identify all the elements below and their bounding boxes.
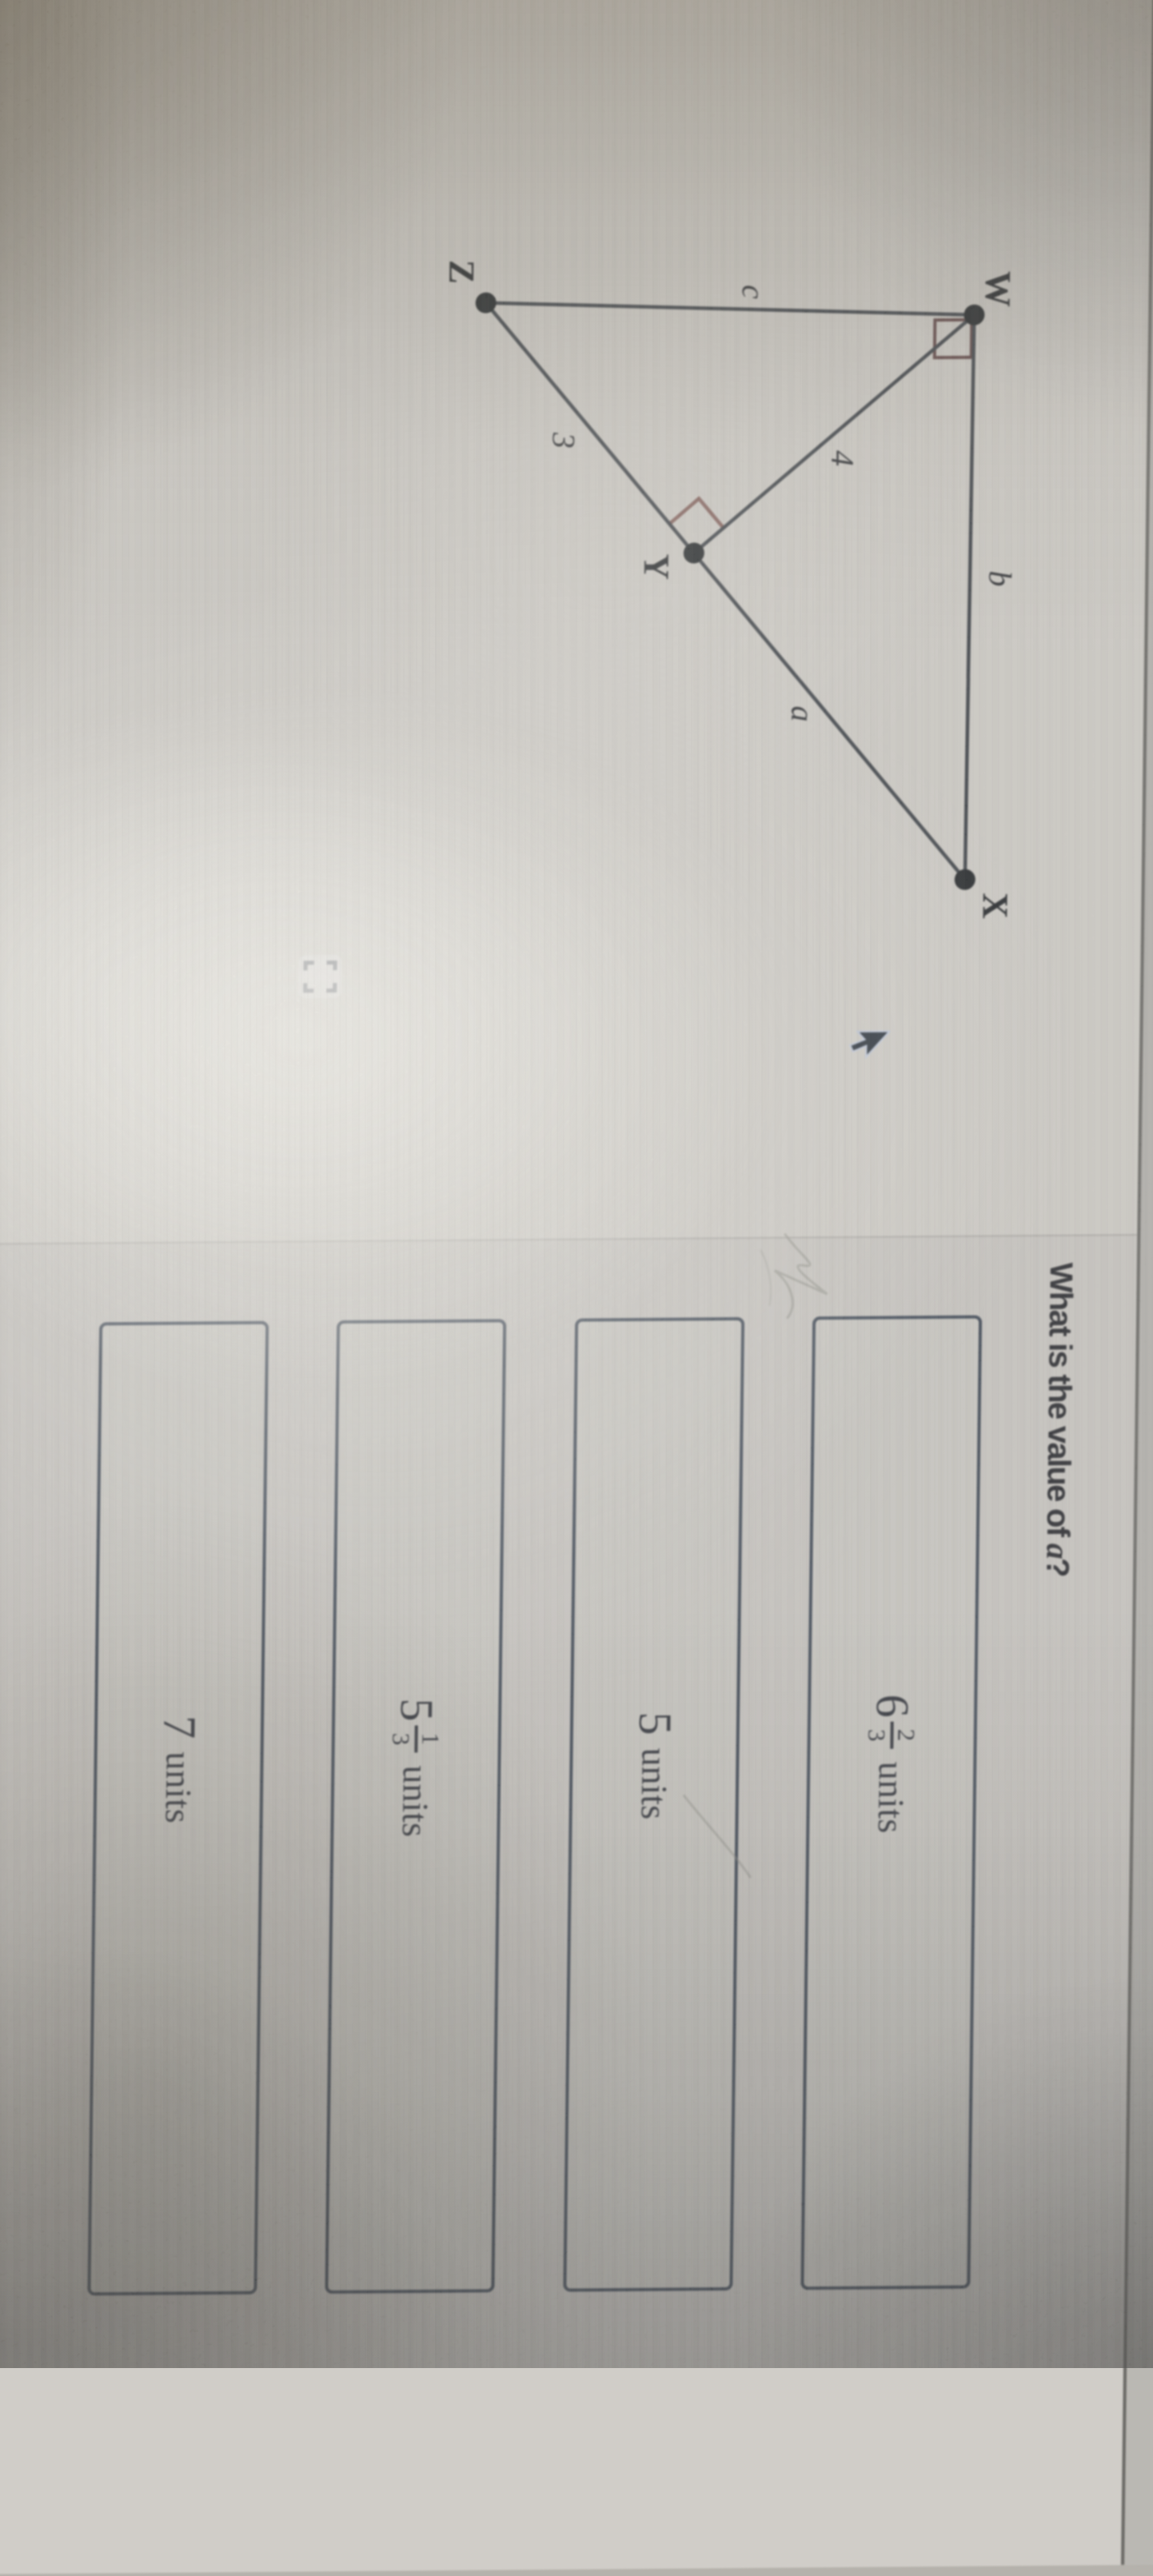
svg-text:4: 4 (824, 450, 860, 466)
svg-text:W: W (978, 271, 1019, 307)
svg-text:b: b (982, 570, 1018, 586)
svg-text:X: X (975, 893, 1015, 919)
svg-text:3: 3 (545, 432, 581, 449)
svg-text:Z: Z (441, 260, 481, 284)
svg-text:Y: Y (636, 553, 676, 580)
svg-text:c: c (736, 285, 772, 299)
svg-text:a: a (784, 705, 820, 721)
